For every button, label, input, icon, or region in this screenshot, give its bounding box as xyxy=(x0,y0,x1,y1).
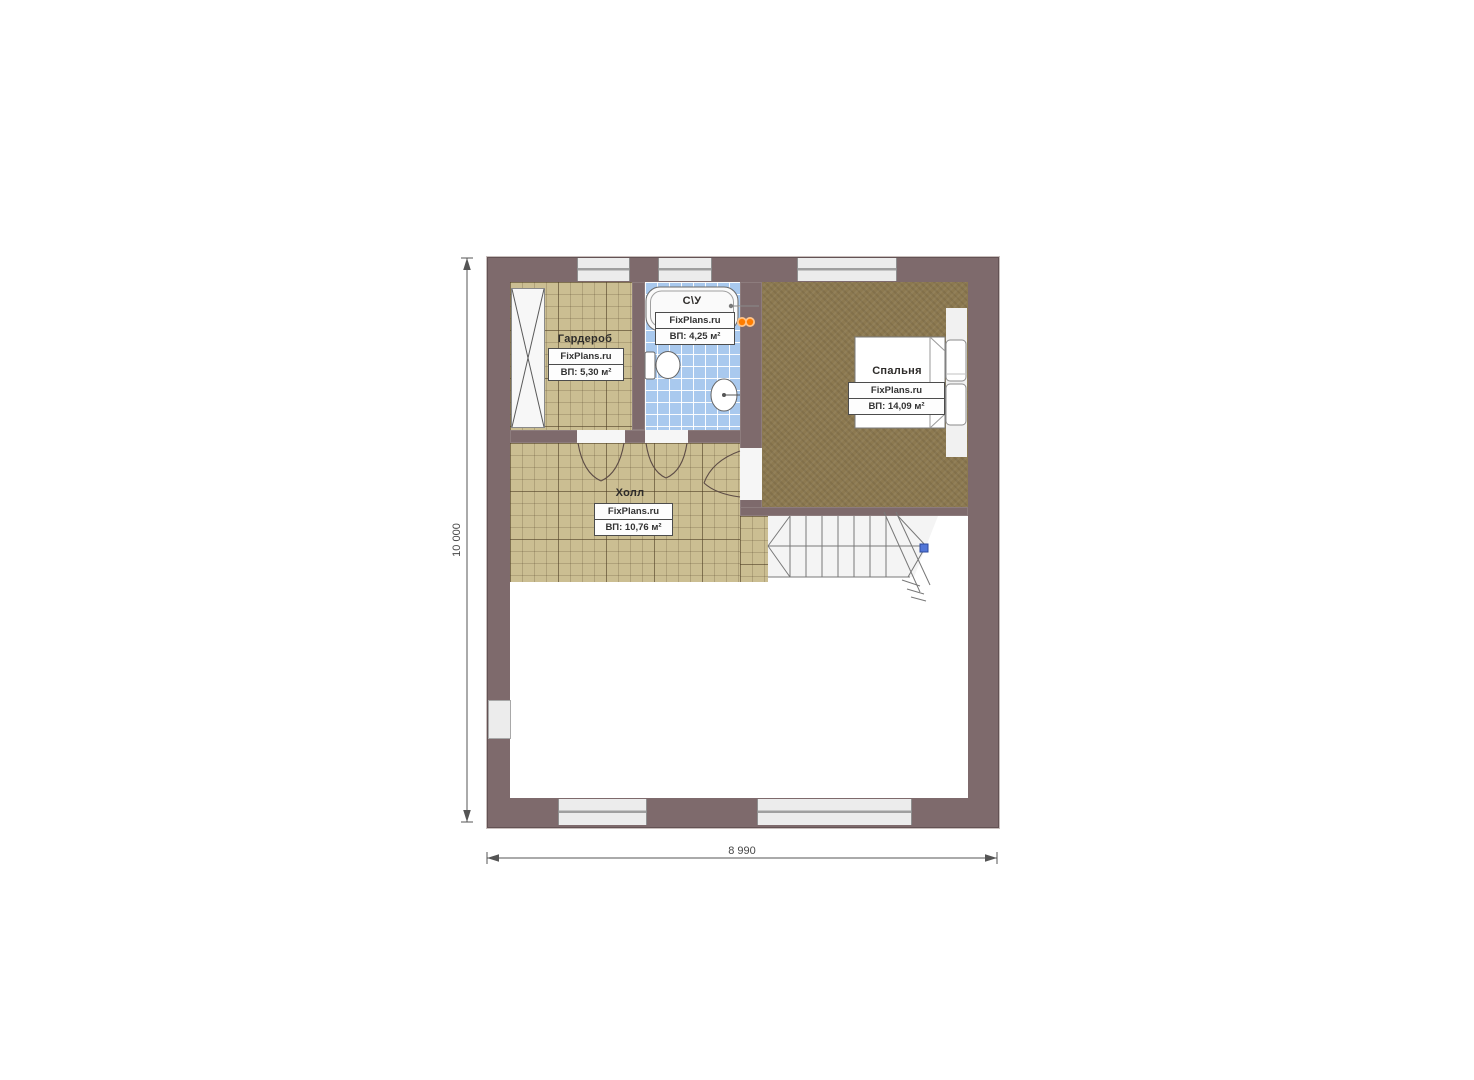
hall-room-name: Холл xyxy=(605,487,655,499)
dimension-height-label: 10 000 xyxy=(451,523,463,557)
bathroom-room-name: С\У xyxy=(662,295,722,307)
wardrobe-closet-icon xyxy=(512,289,545,428)
bedroom-room-name: Спальня xyxy=(852,365,942,377)
bathroom-watermark: FixPlans.ru xyxy=(655,312,735,329)
wardrobe-room-name: Гардероб xyxy=(545,333,625,345)
dimension-width-label: 8 990 xyxy=(728,845,756,857)
hall-area: ВП: 10,76 м² xyxy=(594,519,673,536)
sink-icon xyxy=(711,379,740,411)
wardrobe-watermark: FixPlans.ru xyxy=(548,348,624,365)
wardrobe-area: ВП: 5,30 м² xyxy=(548,364,624,381)
bathroom-area: ВП: 4,25 м² xyxy=(655,328,735,345)
bedroom-watermark: FixPlans.ru xyxy=(848,382,945,399)
stair-marker xyxy=(920,544,928,552)
towel-dryer-icon xyxy=(737,317,755,327)
toilet-icon xyxy=(645,352,680,380)
staircase xyxy=(768,512,938,601)
floorplan-canvas: Гардероб FixPlans.ru ВП: 5,30 м² С\У Fix… xyxy=(0,0,1474,1080)
door-swing-arcs xyxy=(578,443,740,497)
bedroom-area: ВП: 14,09 м² xyxy=(848,398,945,415)
plan-linework xyxy=(0,0,1474,1080)
hall-watermark: FixPlans.ru xyxy=(594,503,673,520)
